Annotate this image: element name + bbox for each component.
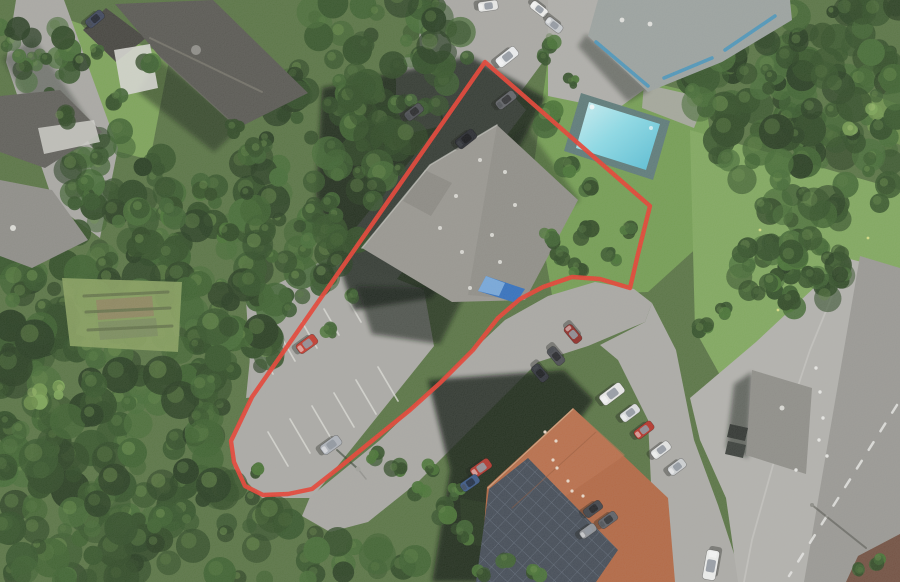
aerial-map-screenshot xyxy=(0,0,900,582)
satellite-photo xyxy=(0,0,900,582)
photo-grain-overlay xyxy=(0,0,900,582)
